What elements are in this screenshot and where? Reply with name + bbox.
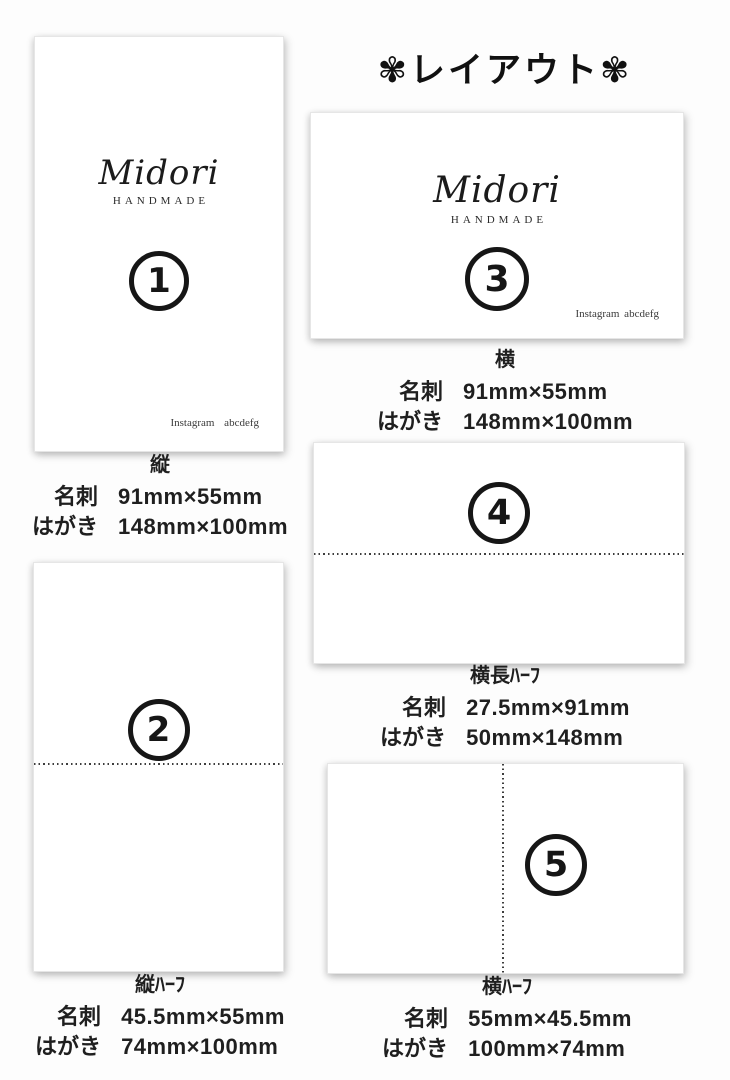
caption-4-rows: 名刺 27.5mm×91mm はがき 50mm×148mm [380,694,630,752]
caption-layout-5: 横ﾊｰﾌ 名刺 55mm×45.5mm はがき 100mm×74mm [332,975,682,1063]
caption-1-rows: 名刺 91mm×55mm はがき 148mm×100mm [32,483,288,541]
midori-logo: Midori [35,155,283,192]
midori-logo: Midori [311,171,683,211]
hagaki-size: 148mm×100mm [118,513,288,542]
caption-1-title: 縦 [150,453,170,477]
layout-card-5: 5 [327,763,684,974]
caption-4-title: 横長ﾊｰﾌ [470,664,540,688]
hagaki-label: はがき [377,408,443,437]
handmade-label: HANDMADE [35,195,283,207]
hagaki-size: 100mm×74mm [468,1035,632,1064]
meishi-label: 名刺 [382,1005,448,1034]
circled-number-1-digit: 1 [147,261,171,301]
meishi-size: 45.5mm×55mm [121,1003,285,1032]
hagaki-size: 148mm×100mm [463,408,633,437]
caption-5-title: 横ﾊｰﾌ [482,975,532,999]
layout-card-3: Midori HANDMADE 3 Instagram abcdefg [310,112,684,339]
meishi-size: 27.5mm×91mm [466,694,630,723]
caption-layout-3: 横 名刺 91mm×55mm はがき 148mm×100mm [330,348,680,436]
circled-number-4-digit: 4 [487,493,511,533]
meishi-label: 名刺 [32,483,98,512]
hagaki-label: はがき [32,513,98,542]
instagram-handle: Instagram abcdefg [170,417,259,429]
meishi-size: 55mm×45.5mm [468,1005,632,1034]
meishi-size: 91mm×55mm [463,378,633,407]
hagaki-label: はがき [382,1035,448,1064]
meishi-label: 名刺 [35,1003,101,1032]
brand-logo-block: Midori HANDMADE [311,171,683,226]
caption-5-rows: 名刺 55mm×45.5mm はがき 100mm×74mm [382,1005,632,1063]
circled-number-3: 3 [465,247,529,311]
fold-line-vertical-icon [502,764,504,973]
caption-layout-2: 縦ﾊｰﾌ 名刺 45.5mm×55mm はがき 74mm×100mm [0,973,320,1061]
fold-line-horizontal-icon [314,553,684,555]
layout-card-1: Midori HANDMADE 1 Instagram abcdefg [34,36,284,452]
circled-number-4: 4 [468,482,530,544]
instagram-handle: Instagram abcdefg [575,308,659,320]
caption-3-title: 横 [495,348,515,372]
meishi-size: 91mm×55mm [118,483,288,512]
caption-3-rows: 名刺 91mm×55mm はがき 148mm×100mm [377,378,633,436]
circled-number-1: 1 [129,251,189,311]
page-title: ✾レイアウト✾ [310,42,700,93]
caption-layout-4: 横長ﾊｰﾌ 名刺 27.5mm×91mm はがき 50mm×148mm [330,664,680,752]
meishi-label: 名刺 [380,694,446,723]
brand-logo-block: Midori HANDMADE [35,155,283,207]
layout-sheet: ✾レイアウト✾ Midori HANDMADE 1 Instagram abcd… [0,0,730,1080]
handmade-label: HANDMADE [311,214,683,226]
hagaki-size: 74mm×100mm [121,1033,285,1062]
circled-number-3-digit: 3 [484,259,509,300]
layout-card-4: 4 [313,442,685,664]
hagaki-label: はがき [380,724,446,753]
caption-2-title: 縦ﾊｰﾌ [135,973,185,997]
hagaki-size: 50mm×148mm [466,724,630,753]
circled-number-2: 2 [128,699,190,761]
circled-number-2-digit: 2 [147,710,171,750]
caption-2-rows: 名刺 45.5mm×55mm はがき 74mm×100mm [35,1003,285,1061]
caption-layout-1: 縦 名刺 91mm×55mm はがき 148mm×100mm [0,453,320,541]
circled-number-5-digit: 5 [544,845,568,885]
layout-card-2: 2 [33,562,284,972]
fold-line-horizontal-icon [34,763,283,765]
hagaki-label: はがき [35,1033,101,1062]
meishi-label: 名刺 [377,378,443,407]
circled-number-5: 5 [525,834,587,896]
